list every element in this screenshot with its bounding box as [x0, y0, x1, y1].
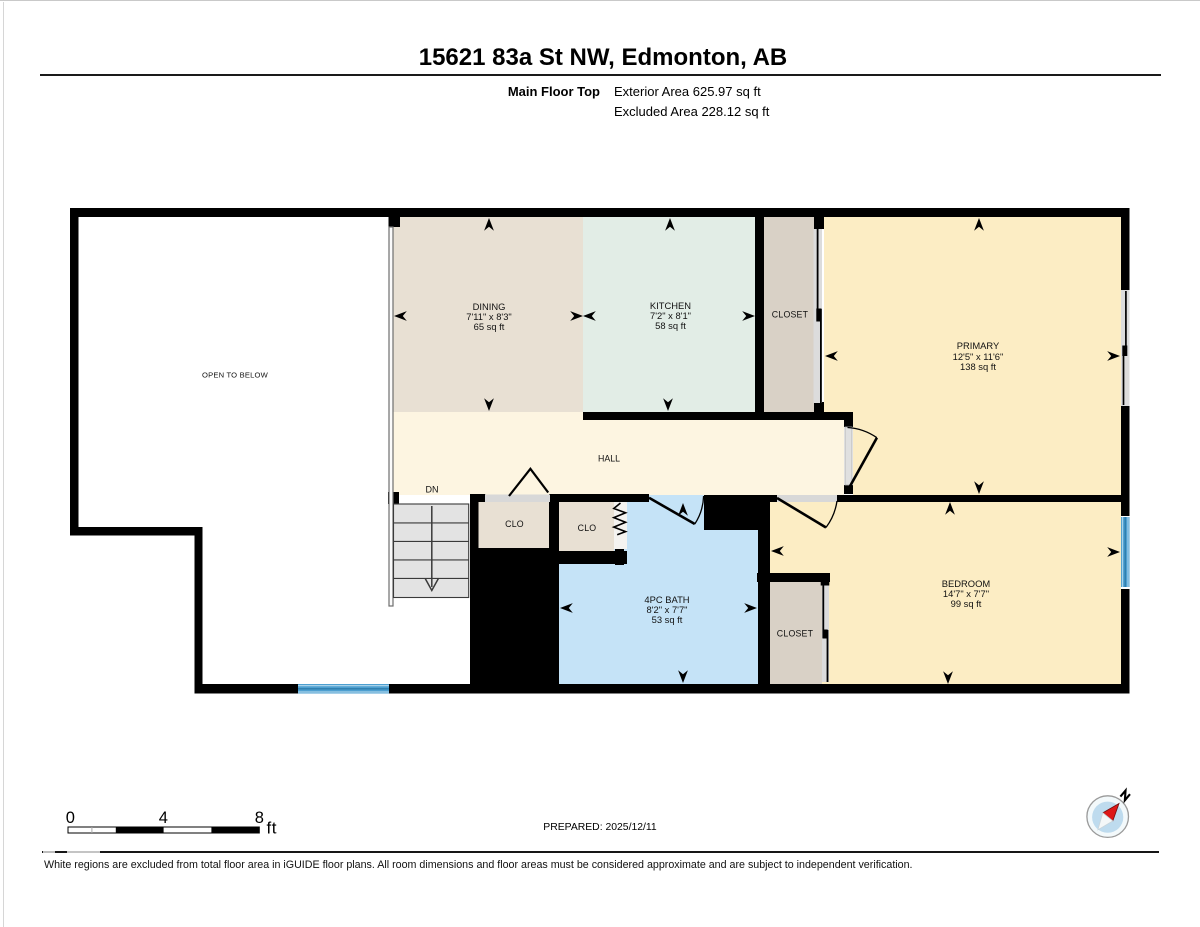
svg-text:PRIMARY: PRIMARY	[957, 340, 1000, 351]
svg-text:99 sq ft: 99 sq ft	[951, 598, 982, 609]
svg-text:58 sq ft: 58 sq ft	[655, 320, 686, 331]
svg-text:HALL: HALL	[598, 454, 620, 464]
svg-text:0: 0	[66, 809, 75, 827]
svg-text:CLO: CLO	[578, 523, 597, 533]
svg-text:DN: DN	[426, 485, 439, 495]
svg-text:OPEN TO BELOW: OPEN TO BELOW	[202, 371, 269, 380]
svg-text:8: 8	[255, 809, 264, 827]
svg-text:ft: ft	[267, 819, 277, 838]
svg-text:CLOSET: CLOSET	[772, 310, 809, 320]
svg-text:53 sq ft: 53 sq ft	[652, 614, 683, 625]
svg-text:138 sq ft: 138 sq ft	[960, 361, 996, 372]
svg-text:65 sq ft: 65 sq ft	[474, 321, 505, 332]
svg-text:CLOSET: CLOSET	[777, 629, 814, 639]
svg-text:CLO: CLO	[505, 519, 524, 529]
svg-text:4: 4	[159, 809, 168, 827]
